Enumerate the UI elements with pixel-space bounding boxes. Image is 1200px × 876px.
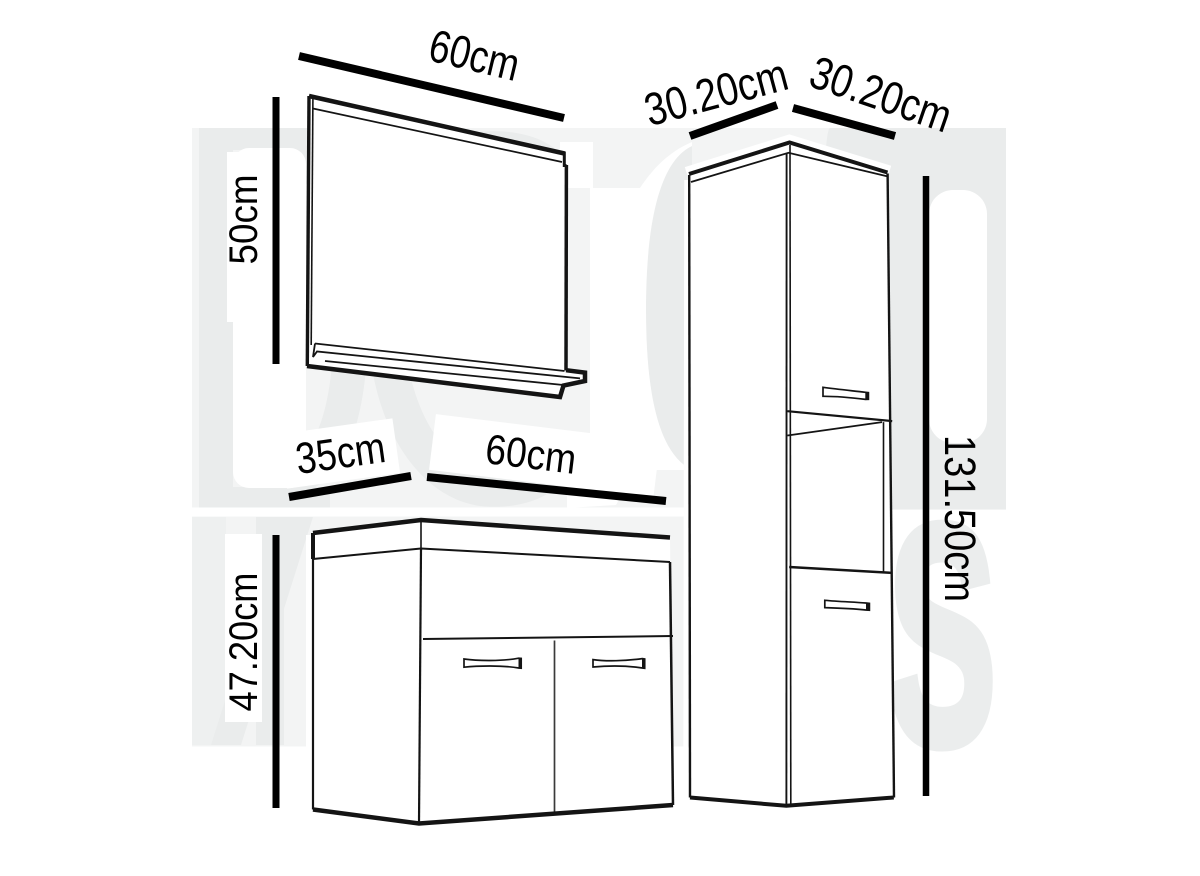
svg-text:30.20cm: 30.20cm: [804, 46, 959, 143]
svg-text:50cm: 50cm: [222, 175, 266, 265]
svg-text:60cm: 60cm: [424, 19, 525, 91]
svg-text:47.20cm: 47.20cm: [222, 573, 266, 712]
svg-text:131.50cm: 131.50cm: [935, 435, 984, 602]
